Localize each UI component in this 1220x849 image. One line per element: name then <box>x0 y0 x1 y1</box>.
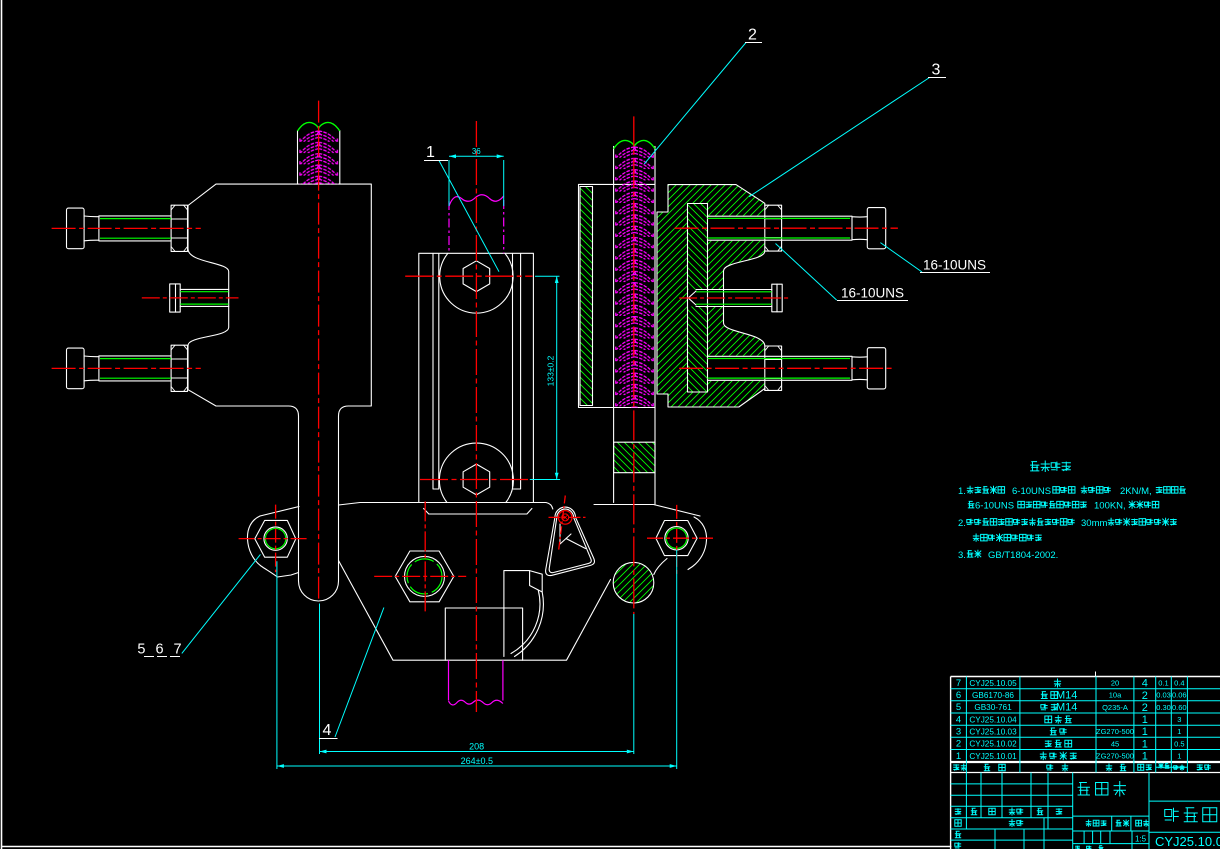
svg-text:264±0.5: 264±0.5 <box>461 756 493 766</box>
svg-text:GB30-761: GB30-761 <box>974 703 1012 712</box>
svg-text:0.06: 0.06 <box>1172 691 1187 700</box>
svg-text:3: 3 <box>956 726 961 737</box>
svg-text:45: 45 <box>1111 739 1119 748</box>
svg-text:CYJ25.10.05: CYJ25.10.05 <box>969 679 1017 688</box>
svg-text:5 6 7: 5 6 7 <box>137 642 184 658</box>
svg-text:GB6170-86: GB6170-86 <box>972 691 1014 700</box>
svg-text:6-10UNS: 6-10UNS <box>1012 486 1051 497</box>
svg-text:1: 1 <box>1142 738 1148 750</box>
svg-text:CYJ25.10.04: CYJ25.10.04 <box>969 715 1017 724</box>
svg-text:7: 7 <box>956 678 961 689</box>
svg-text:2KN/M,: 2KN/M, <box>1120 486 1152 497</box>
svg-text:20: 20 <box>1111 679 1119 688</box>
svg-text:M14: M14 <box>1056 690 1077 702</box>
svg-text:6: 6 <box>956 690 961 701</box>
svg-text:ZG270-500: ZG270-500 <box>1096 752 1134 761</box>
svg-text:5: 5 <box>956 702 961 713</box>
svg-text:4: 4 <box>1142 678 1148 690</box>
svg-text:0.30: 0.30 <box>1156 703 1171 712</box>
svg-text:1: 1 <box>1142 714 1148 726</box>
svg-text:M14: M14 <box>1056 702 1077 714</box>
svg-text:0.03: 0.03 <box>1156 691 1171 700</box>
svg-text:1: 1 <box>1142 726 1148 738</box>
svg-text:3.: 3. <box>958 550 966 561</box>
svg-text:3: 3 <box>932 62 941 79</box>
svg-text:2.: 2. <box>958 518 966 529</box>
svg-text:GB/T1804-2002.: GB/T1804-2002. <box>988 550 1058 561</box>
svg-text:3: 3 <box>1177 715 1181 724</box>
svg-text:133±0.2: 133±0.2 <box>546 355 556 386</box>
svg-text:6-10UNS: 6-10UNS <box>975 501 1014 512</box>
svg-text:2: 2 <box>1142 702 1148 714</box>
svg-text:1: 1 <box>1177 727 1181 736</box>
svg-text:208: 208 <box>469 742 484 752</box>
svg-text:2: 2 <box>956 739 961 750</box>
svg-text:0.4: 0.4 <box>1174 679 1184 688</box>
svg-text:1: 1 <box>426 144 435 161</box>
svg-text:4: 4 <box>323 722 332 739</box>
svg-text:CYJ25.10.01: CYJ25.10.01 <box>969 752 1017 761</box>
svg-text:CYJ25.10.00: CYJ25.10.00 <box>1155 834 1220 849</box>
svg-text:100KN,: 100KN, <box>1094 501 1126 512</box>
svg-text:2: 2 <box>748 27 757 44</box>
svg-text:CYJ25.10.02: CYJ25.10.02 <box>969 740 1017 749</box>
svg-text:16-10UNS: 16-10UNS <box>923 258 986 273</box>
svg-text:1: 1 <box>1142 751 1148 763</box>
svg-text:2: 2 <box>1142 690 1148 702</box>
svg-text:1:5: 1:5 <box>1135 835 1147 844</box>
svg-text:16-10UNS: 16-10UNS <box>841 286 904 301</box>
svg-text:1.: 1. <box>958 486 966 497</box>
svg-text:ZG270-500: ZG270-500 <box>1096 727 1134 736</box>
svg-text:4: 4 <box>956 714 961 725</box>
svg-text:0.1: 0.1 <box>1158 679 1168 688</box>
svg-text:1: 1 <box>956 751 961 762</box>
svg-text:10a: 10a <box>1109 691 1122 700</box>
svg-text:0.5: 0.5 <box>1174 739 1184 748</box>
svg-text:36: 36 <box>472 147 481 156</box>
svg-text:1: 1 <box>1177 752 1181 761</box>
svg-text:30mm: 30mm <box>1081 518 1107 529</box>
svg-text:Q235-A: Q235-A <box>1102 703 1128 712</box>
svg-text:CYJ25.10.03: CYJ25.10.03 <box>969 727 1017 736</box>
svg-text:0.60: 0.60 <box>1172 703 1187 712</box>
